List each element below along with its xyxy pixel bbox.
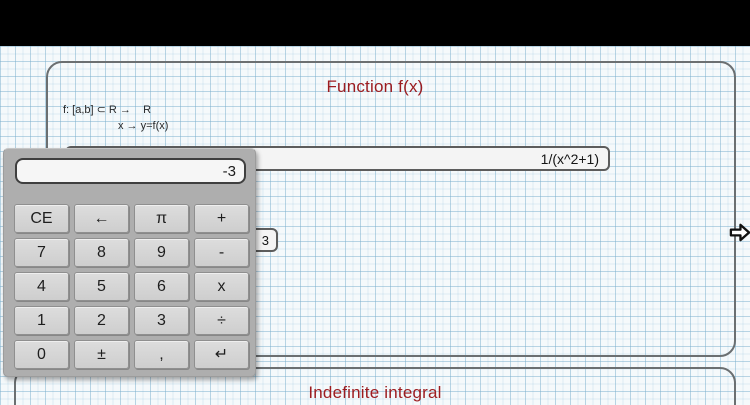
function-panel-title: Function f(x) [0, 77, 750, 97]
calculator-display[interactable] [15, 158, 246, 184]
mapping-notation-line2: x → y=f(x) [118, 120, 168, 132]
calc-key-four[interactable]: 4 [14, 272, 69, 301]
calc-key-plus-minus[interactable]: ± [74, 340, 129, 369]
calculator-popup: CE←π+789-456x123÷0±,↵ [3, 148, 256, 377]
mapping-notation-line1: f: [a,b] ⊂ R → R [63, 103, 151, 116]
calc-key-clear-entry[interactable]: CE [14, 204, 69, 233]
calc-key-seven[interactable]: 7 [14, 238, 69, 267]
calc-key-nine[interactable]: 9 [134, 238, 189, 267]
arrow-right-icon[interactable] [728, 221, 750, 244]
app-screen: Function f(x) f: [a,b] ⊂ R → R x → y=f(x… [0, 0, 750, 405]
integral-panel-title: Indefinite integral [0, 383, 750, 403]
calc-key-two[interactable]: 2 [74, 306, 129, 335]
calc-key-one[interactable]: 1 [14, 306, 69, 335]
calc-keys: CE←π+789-456x123÷0±,↵ [14, 204, 249, 369]
calc-key-multiply[interactable]: x [194, 272, 249, 301]
calc-key-pi[interactable]: π [134, 204, 189, 233]
calc-key-backspace[interactable]: ← [74, 204, 129, 233]
calc-key-zero[interactable]: 0 [14, 340, 69, 369]
calc-key-comma[interactable]: , [134, 340, 189, 369]
calc-key-eight[interactable]: 8 [74, 238, 129, 267]
calc-key-minus[interactable]: - [194, 238, 249, 267]
calc-key-divide[interactable]: ÷ [194, 306, 249, 335]
status-bar [0, 0, 750, 46]
calc-key-five[interactable]: 5 [74, 272, 129, 301]
calc-key-six[interactable]: 6 [134, 272, 189, 301]
calc-key-plus[interactable]: + [194, 204, 249, 233]
calc-key-three[interactable]: 3 [134, 306, 189, 335]
calc-key-enter[interactable]: ↵ [194, 340, 249, 369]
